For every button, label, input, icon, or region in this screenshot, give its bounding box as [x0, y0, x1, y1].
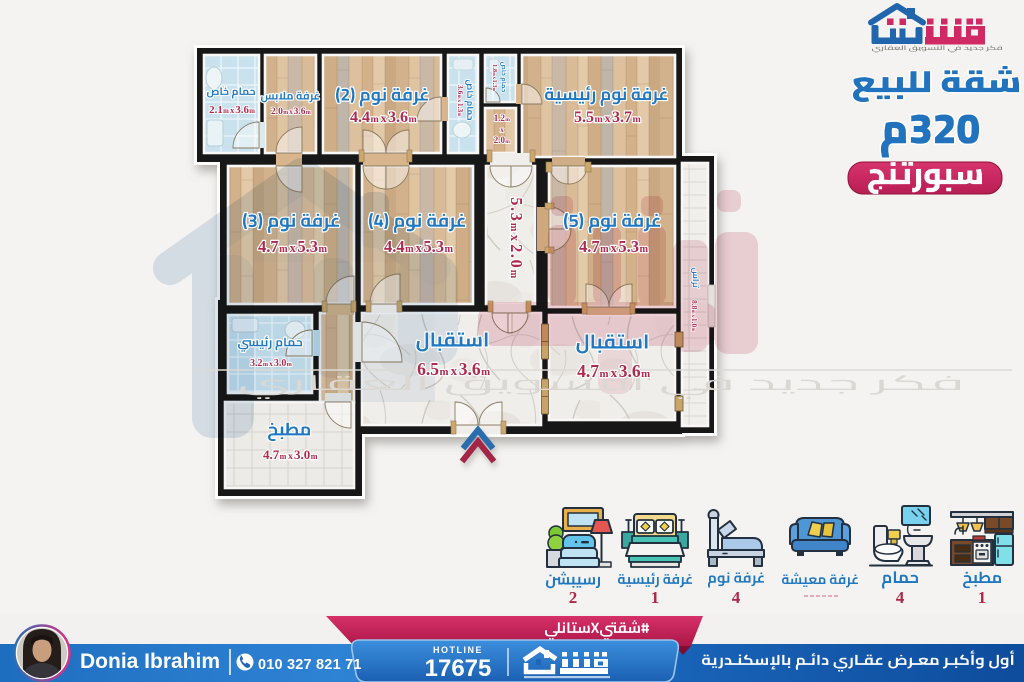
svg-text:2: 2	[569, 588, 578, 607]
svg-text:5.5mx3.7m: 5.5mx3.7m	[574, 109, 642, 126]
svg-text:1: 1	[978, 588, 987, 607]
svg-text:3.2mx3.0m: 3.2mx3.0m	[250, 358, 293, 369]
svg-text:17675: 17675	[425, 655, 492, 682]
svg-text:4: 4	[732, 588, 741, 607]
svg-text:HOTLINE: HOTLINE	[433, 645, 483, 655]
svg-text:1: 1	[651, 588, 660, 607]
svg-text:010 327 821 71: 010 327 821 71	[258, 657, 362, 673]
svg-text:2.0mx3.6m: 2.0mx3.6m	[271, 107, 311, 117]
svg-text:2.1mx3.6m: 2.1mx3.6m	[209, 104, 255, 116]
svg-text:Donia Ibrahim: Donia Ibrahim	[80, 650, 220, 673]
svg-text:1.8mx1.3m: 1.8mx1.3m	[491, 64, 498, 92]
svg-text:4.4mx3.6m: 4.4mx3.6m	[350, 109, 418, 126]
svg-text:4: 4	[896, 588, 905, 607]
svg-text:x: x	[500, 127, 504, 134]
